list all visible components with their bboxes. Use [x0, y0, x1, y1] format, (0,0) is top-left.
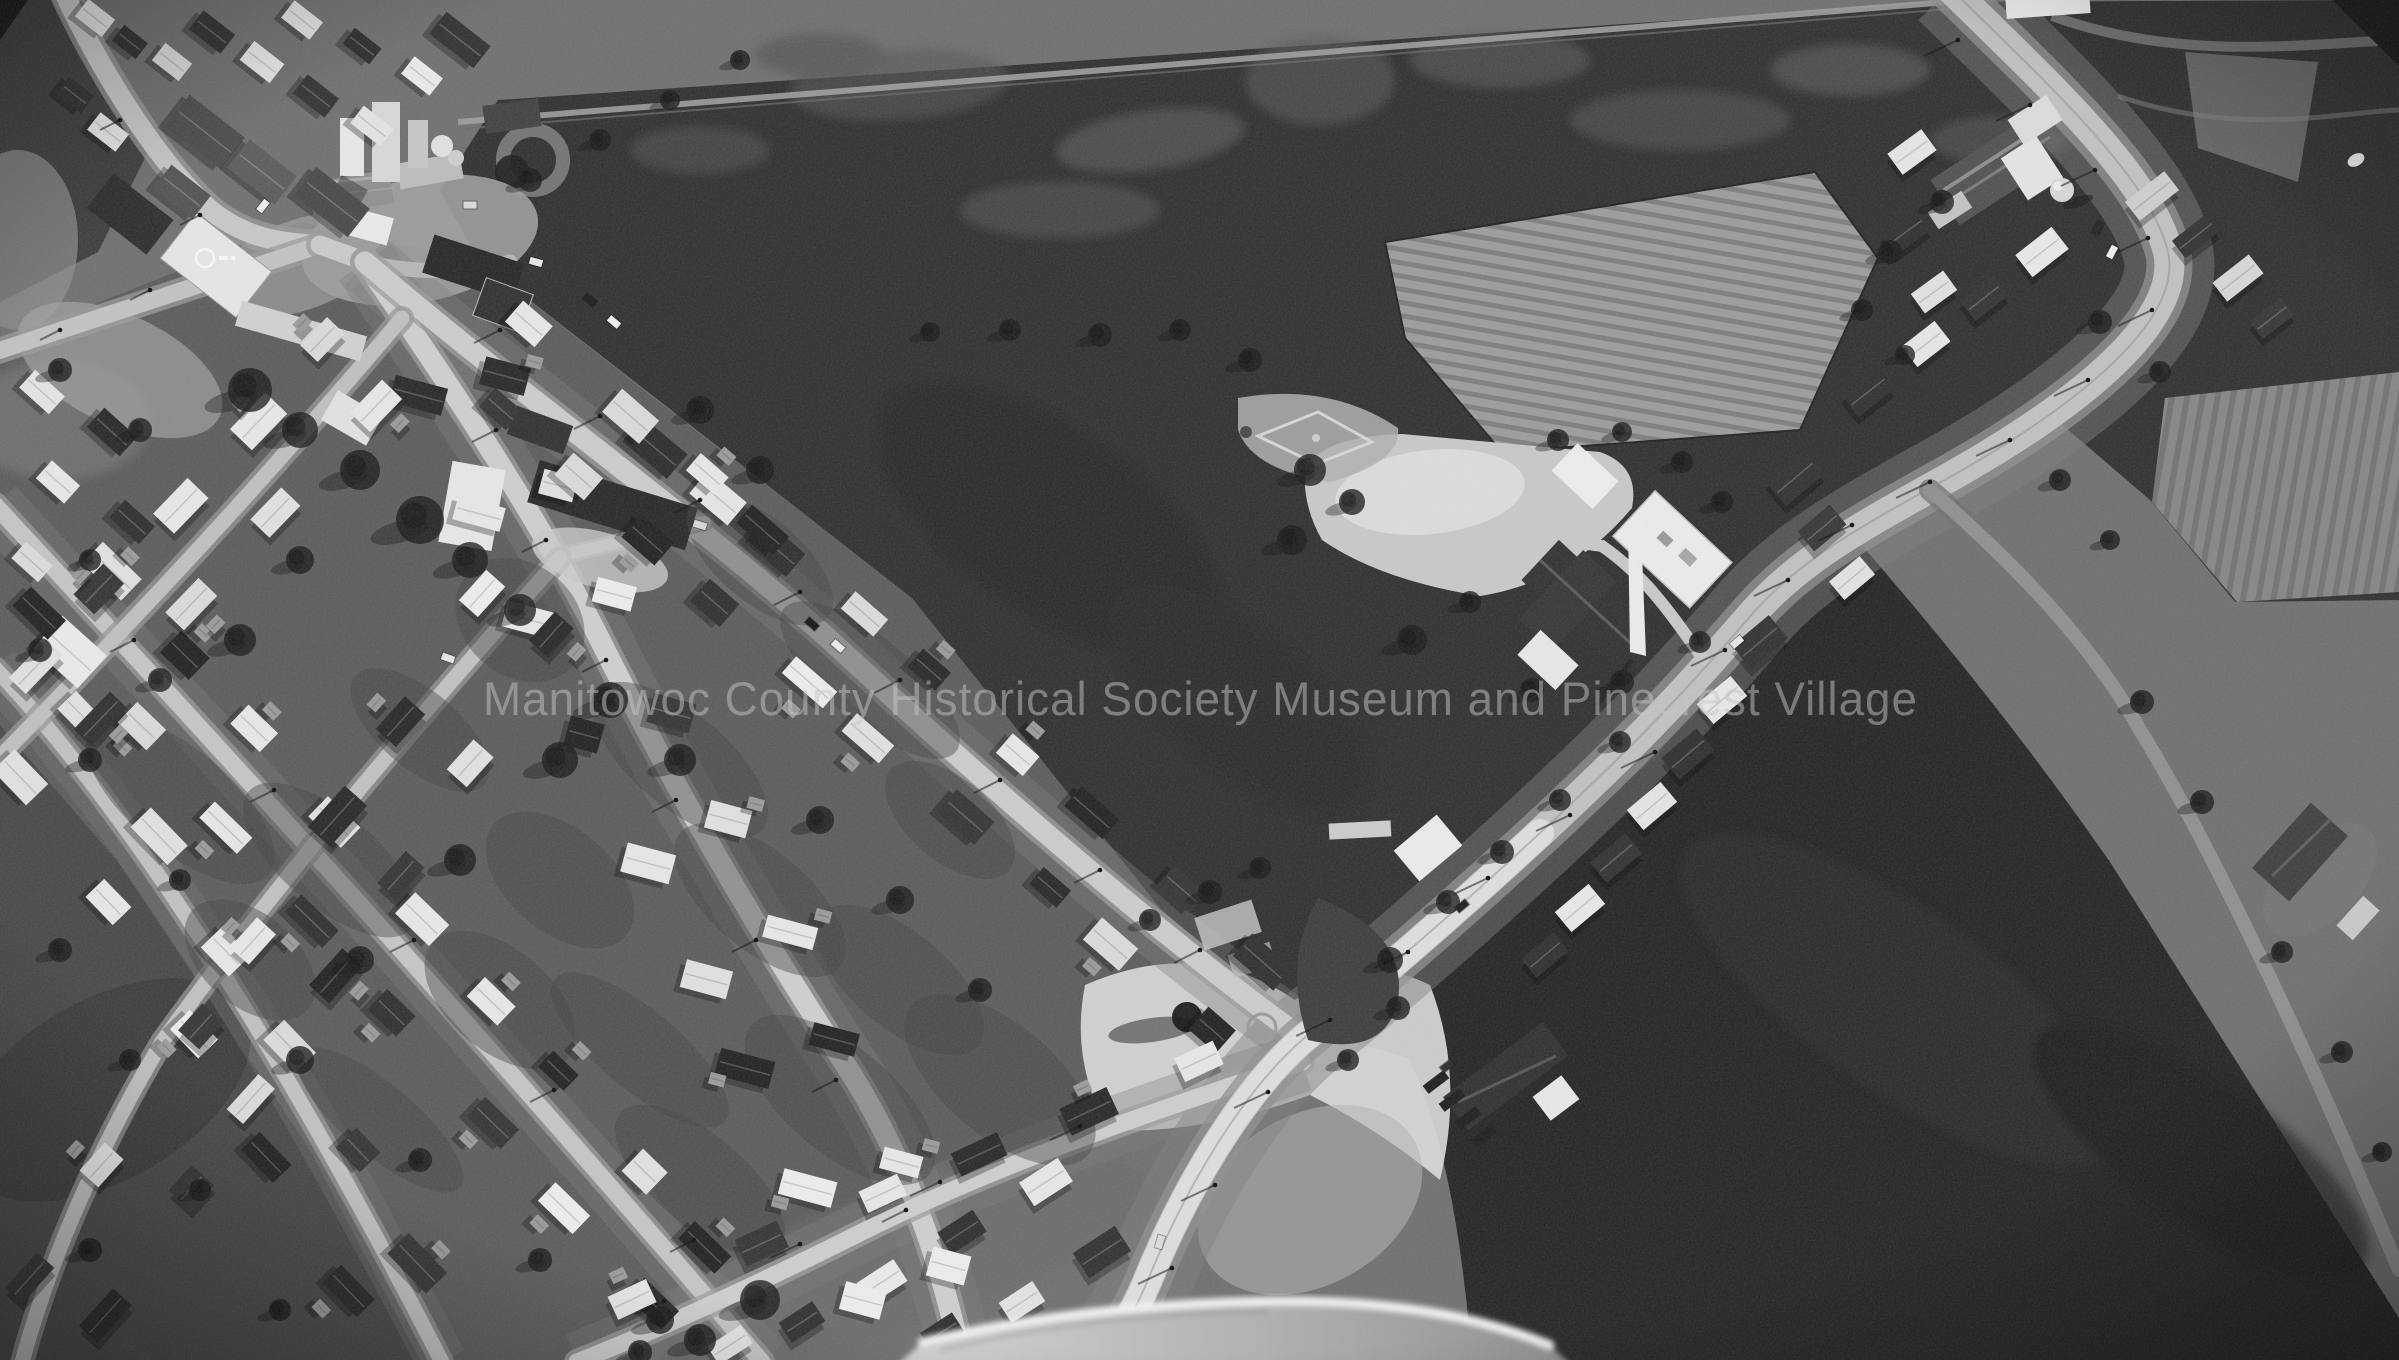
watermark-text: Manitowoc County Historical Society Muse…	[483, 672, 1918, 725]
aerial-photo: Manitowoc County Historical Society Muse…	[0, 0, 2399, 1360]
aerial-photo-canvas: Manitowoc County Historical Society Muse…	[0, 0, 2399, 1360]
